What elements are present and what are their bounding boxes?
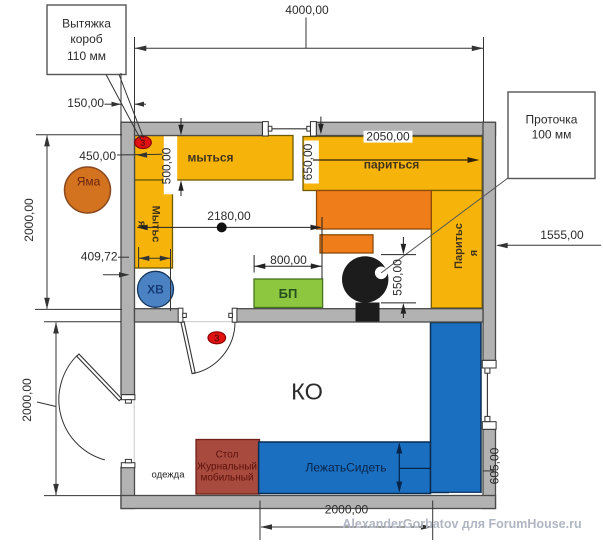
svg-text:550,00: 550,00 — [391, 259, 405, 296]
svg-text:409,72: 409,72 — [81, 250, 118, 264]
svg-text:БП: БП — [279, 286, 298, 301]
svg-text:2000,00: 2000,00 — [22, 198, 36, 242]
svg-text:2000,00: 2000,00 — [20, 378, 34, 422]
svg-text:Паритьс: Паритьс — [453, 223, 465, 269]
svg-text:короб: короб — [70, 32, 102, 46]
svg-text:4000,00: 4000,00 — [285, 3, 329, 17]
svg-text:3: 3 — [214, 334, 220, 345]
svg-text:110 мм: 110 мм — [67, 49, 106, 63]
svg-text:одежда: одежда — [152, 470, 186, 481]
svg-text:2050,00: 2050,00 — [366, 130, 410, 144]
svg-text:650,00: 650,00 — [301, 143, 315, 180]
svg-text:800,00: 800,00 — [270, 253, 307, 267]
svg-text:Проточка: Проточка — [526, 113, 578, 127]
svg-text:450,00: 450,00 — [79, 149, 116, 163]
svg-text:я: я — [468, 250, 480, 256]
svg-text:Яма: Яма — [77, 175, 101, 189]
svg-text:605,00: 605,00 — [488, 447, 502, 484]
svg-text:ЛежатьСидеть: ЛежатьСидеть — [306, 461, 387, 475]
svg-text:Вытяжка: Вытяжка — [62, 17, 111, 31]
svg-text:ХВ: ХВ — [147, 283, 164, 297]
svg-text:Стол: Стол — [216, 450, 239, 461]
svg-text:1555,00: 1555,00 — [540, 228, 584, 242]
svg-text:500,00: 500,00 — [160, 147, 174, 184]
svg-text:AlexanderGorbatov для ForumHou: AlexanderGorbatov для ForumHouse.ru — [342, 517, 581, 531]
svg-text:100 мм: 100 мм — [532, 128, 572, 142]
svg-text:150,00: 150,00 — [67, 96, 104, 110]
svg-text:мыться: мыться — [187, 151, 233, 165]
svg-text:Мытьс: Мытьс — [150, 206, 162, 243]
svg-text:мобильный: мобильный — [200, 472, 253, 484]
svg-text:2000,00: 2000,00 — [325, 503, 369, 517]
svg-text:Журнальный: Журнальный — [197, 462, 257, 473]
svg-text:2180,00: 2180,00 — [207, 209, 251, 223]
svg-text:париться: париться — [364, 158, 420, 172]
svg-text:КО: КО — [291, 379, 323, 405]
